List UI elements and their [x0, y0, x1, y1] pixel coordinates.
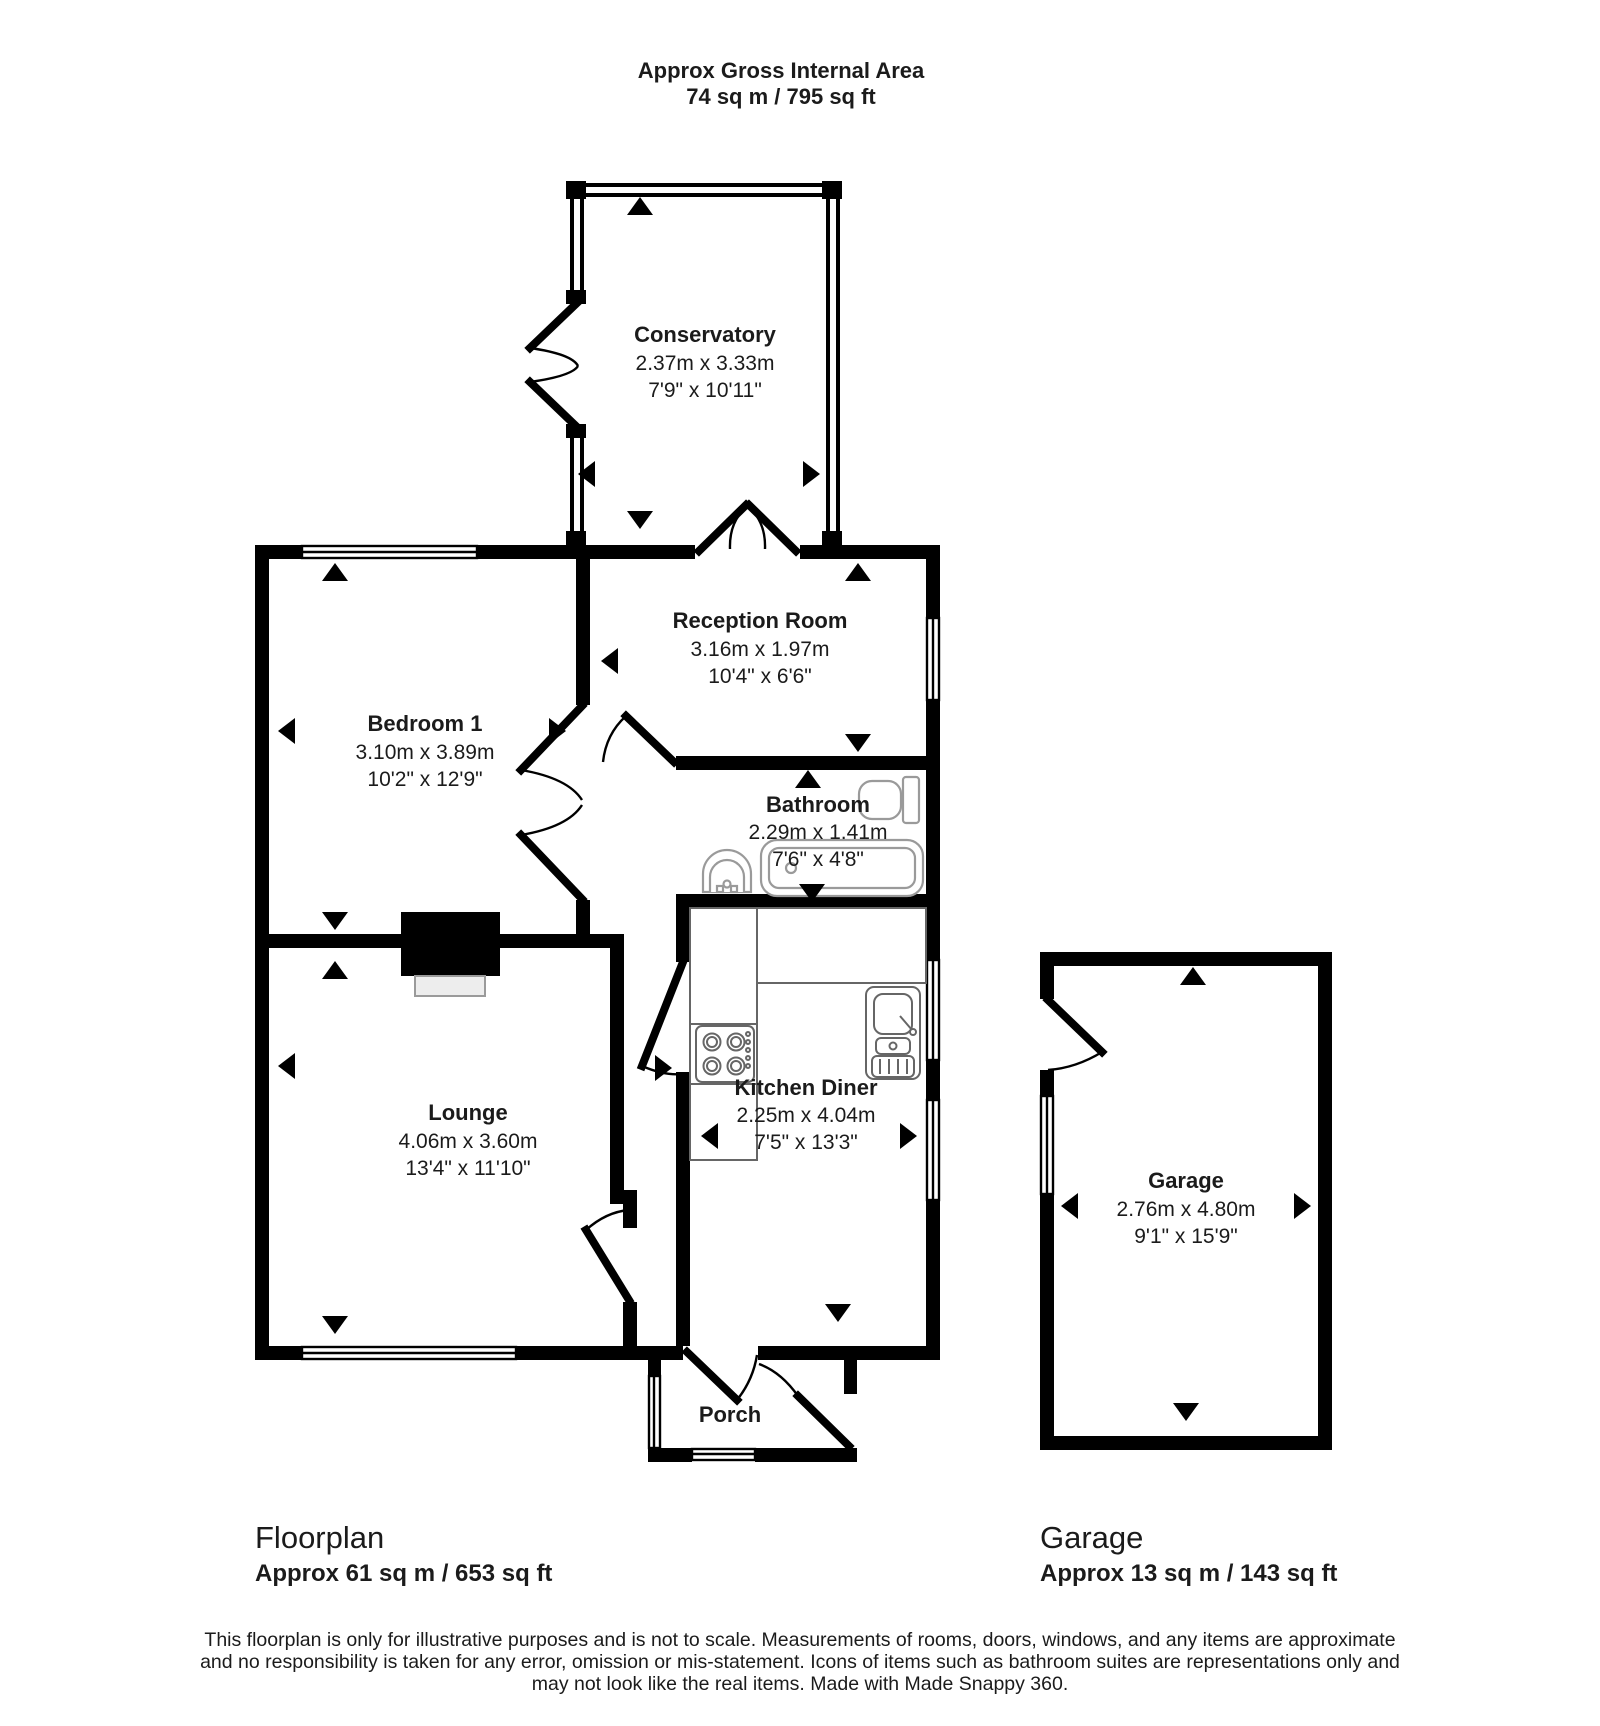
garage-area-value: Approx 13 sq m / 143 sq ft — [1040, 1560, 1337, 1587]
room-name: Conservatory — [634, 322, 777, 347]
kitchen-door — [642, 962, 683, 1074]
kitchen-hall-wall — [676, 908, 690, 962]
camera-arrow-icon — [322, 912, 348, 930]
camera-arrow-icon — [655, 1055, 672, 1081]
room-name: Garage — [1148, 1168, 1224, 1193]
reception-window — [927, 618, 939, 700]
camera-arrow-icon — [1061, 1193, 1078, 1219]
camera-arrow-icon — [1294, 1193, 1311, 1219]
room-lounge: Lounge 4.06m x 3.60m 13'4" x 11'10" — [399, 1100, 538, 1180]
room-reception: Reception Room 3.16m x 1.97m 10'4" x 6'6… — [673, 608, 848, 688]
room-dim-imperial: 13'4" x 11'10" — [405, 1157, 530, 1180]
camera-arrow-icon — [322, 961, 348, 979]
kitchen-counter-top — [757, 908, 926, 983]
room-garage: Garage 2.76m x 4.80m 9'1" x 15'9" — [1117, 1168, 1256, 1248]
camera-arrow-icon — [627, 197, 653, 215]
room-dim-metric: 2.37m x 3.33m — [636, 352, 775, 375]
garage-section-label: Garage — [1040, 1520, 1143, 1555]
room-dim-imperial: 7'9" x 10'11" — [648, 379, 762, 402]
room-name: Lounge — [428, 1100, 507, 1125]
camera-arrow-icon — [795, 770, 821, 788]
footer: Floorplan Approx 61 sq m / 653 sq ft Gar… — [255, 1520, 1337, 1587]
room-dim-imperial: 7'6" x 4'8" — [772, 848, 864, 871]
floorplan-svg: Approx Gross Internal Area 74 sq m / 795… — [0, 0, 1600, 1726]
gross-internal-area-value: 74 sq m / 795 sq ft — [686, 84, 876, 109]
room-dim-imperial: 9'1" x 15'9" — [1134, 1225, 1238, 1248]
header: Approx Gross Internal Area 74 sq m / 795… — [638, 58, 925, 109]
room-dim-metric: 2.29m x 1.41m — [749, 821, 888, 844]
room-name: Bathroom — [766, 792, 870, 817]
disclaimer-line-3: may not look like the real items. Made w… — [532, 1673, 1069, 1695]
conservatory-double-door — [530, 302, 578, 428]
disclaimer: This floorplan is only for illustrative … — [200, 1629, 1400, 1695]
camera-arrow-icon — [845, 563, 871, 581]
room-dim-imperial: 10'2" x 12'9" — [367, 768, 482, 791]
disclaimer-line-2: and no responsibility is taken for any e… — [200, 1651, 1400, 1673]
gross-internal-area-label: Approx Gross Internal Area — [638, 58, 925, 83]
camera-arrow-icon — [1173, 1403, 1199, 1421]
garage-window — [1041, 1096, 1053, 1194]
disclaimer-line-1: This floorplan is only for illustrative … — [204, 1629, 1395, 1651]
room-dim-metric: 2.76m x 4.80m — [1117, 1198, 1256, 1221]
kitchen-sink-icon — [866, 987, 920, 1079]
reception-hall-door — [603, 716, 674, 762]
reception-bathroom-wall — [676, 756, 940, 770]
camera-arrow-icon — [322, 563, 348, 581]
room-kitchen-diner: Kitchen Diner 2.25m x 4.04m 7'5" x 13'3" — [734, 1075, 877, 1154]
room-name: Bedroom 1 — [368, 711, 483, 736]
room-name: Reception Room — [673, 608, 848, 633]
room-dim-metric: 4.06m x 3.60m — [399, 1130, 538, 1153]
bedroom-reception-wall — [576, 559, 590, 705]
chimney-breast — [401, 912, 500, 976]
camera-arrow-icon — [601, 648, 618, 674]
floorplan-area-value: Approx 61 sq m / 653 sq ft — [255, 1560, 552, 1587]
bedroom-window — [302, 546, 477, 558]
sink-icon — [703, 850, 751, 892]
garage-door — [1048, 1000, 1102, 1070]
camera-arrow-icon — [627, 511, 653, 529]
camera-arrow-icon — [278, 1053, 295, 1079]
camera-arrow-icon — [803, 461, 820, 487]
porch-front-window — [692, 1449, 755, 1460]
hearth — [415, 976, 485, 996]
room-conservatory: Conservatory 2.37m x 3.33m 7'9" x 10'11" — [634, 322, 777, 402]
porch-side-window — [649, 1376, 660, 1448]
room-dim-imperial: 10'4" x 6'6" — [708, 665, 812, 688]
doors — [521, 706, 683, 1300]
porch-outer-door — [759, 1364, 849, 1446]
room-dim-metric: 3.16m x 1.97m — [691, 638, 830, 661]
lounge-door — [586, 1210, 629, 1300]
camera-arrow-icon — [825, 1304, 851, 1322]
porch-inner-door — [687, 1352, 757, 1400]
kitchen-window-bottom — [927, 1100, 939, 1200]
kitchen-window-top — [927, 960, 939, 1060]
room-dim-metric: 3.10m x 3.89m — [356, 741, 495, 764]
camera-arrow-icon — [845, 734, 871, 752]
floorplan-page: Approx Gross Internal Area 74 sq m / 795… — [0, 0, 1600, 1726]
room-bedroom-1: Bedroom 1 3.10m x 3.89m 10'2" x 12'9" — [356, 711, 495, 791]
floorplan-section-label: Floorplan — [255, 1520, 384, 1555]
camera-arrow-icon — [900, 1123, 917, 1149]
camera-arrow-icon — [1180, 967, 1206, 985]
room-name: Kitchen Diner — [734, 1075, 877, 1100]
french-doors — [699, 505, 796, 551]
lounge-hall-wall — [610, 948, 624, 1190]
camera-arrow-icon — [322, 1316, 348, 1334]
room-name: Porch — [699, 1402, 761, 1427]
lounge-window — [302, 1347, 516, 1359]
room-dim-metric: 2.25m x 4.04m — [737, 1104, 876, 1127]
hob-icon — [696, 1026, 754, 1082]
room-porch: Porch — [699, 1402, 761, 1427]
camera-arrow-icon — [278, 718, 295, 744]
room-dim-imperial: 7'5" x 13'3" — [754, 1131, 858, 1154]
